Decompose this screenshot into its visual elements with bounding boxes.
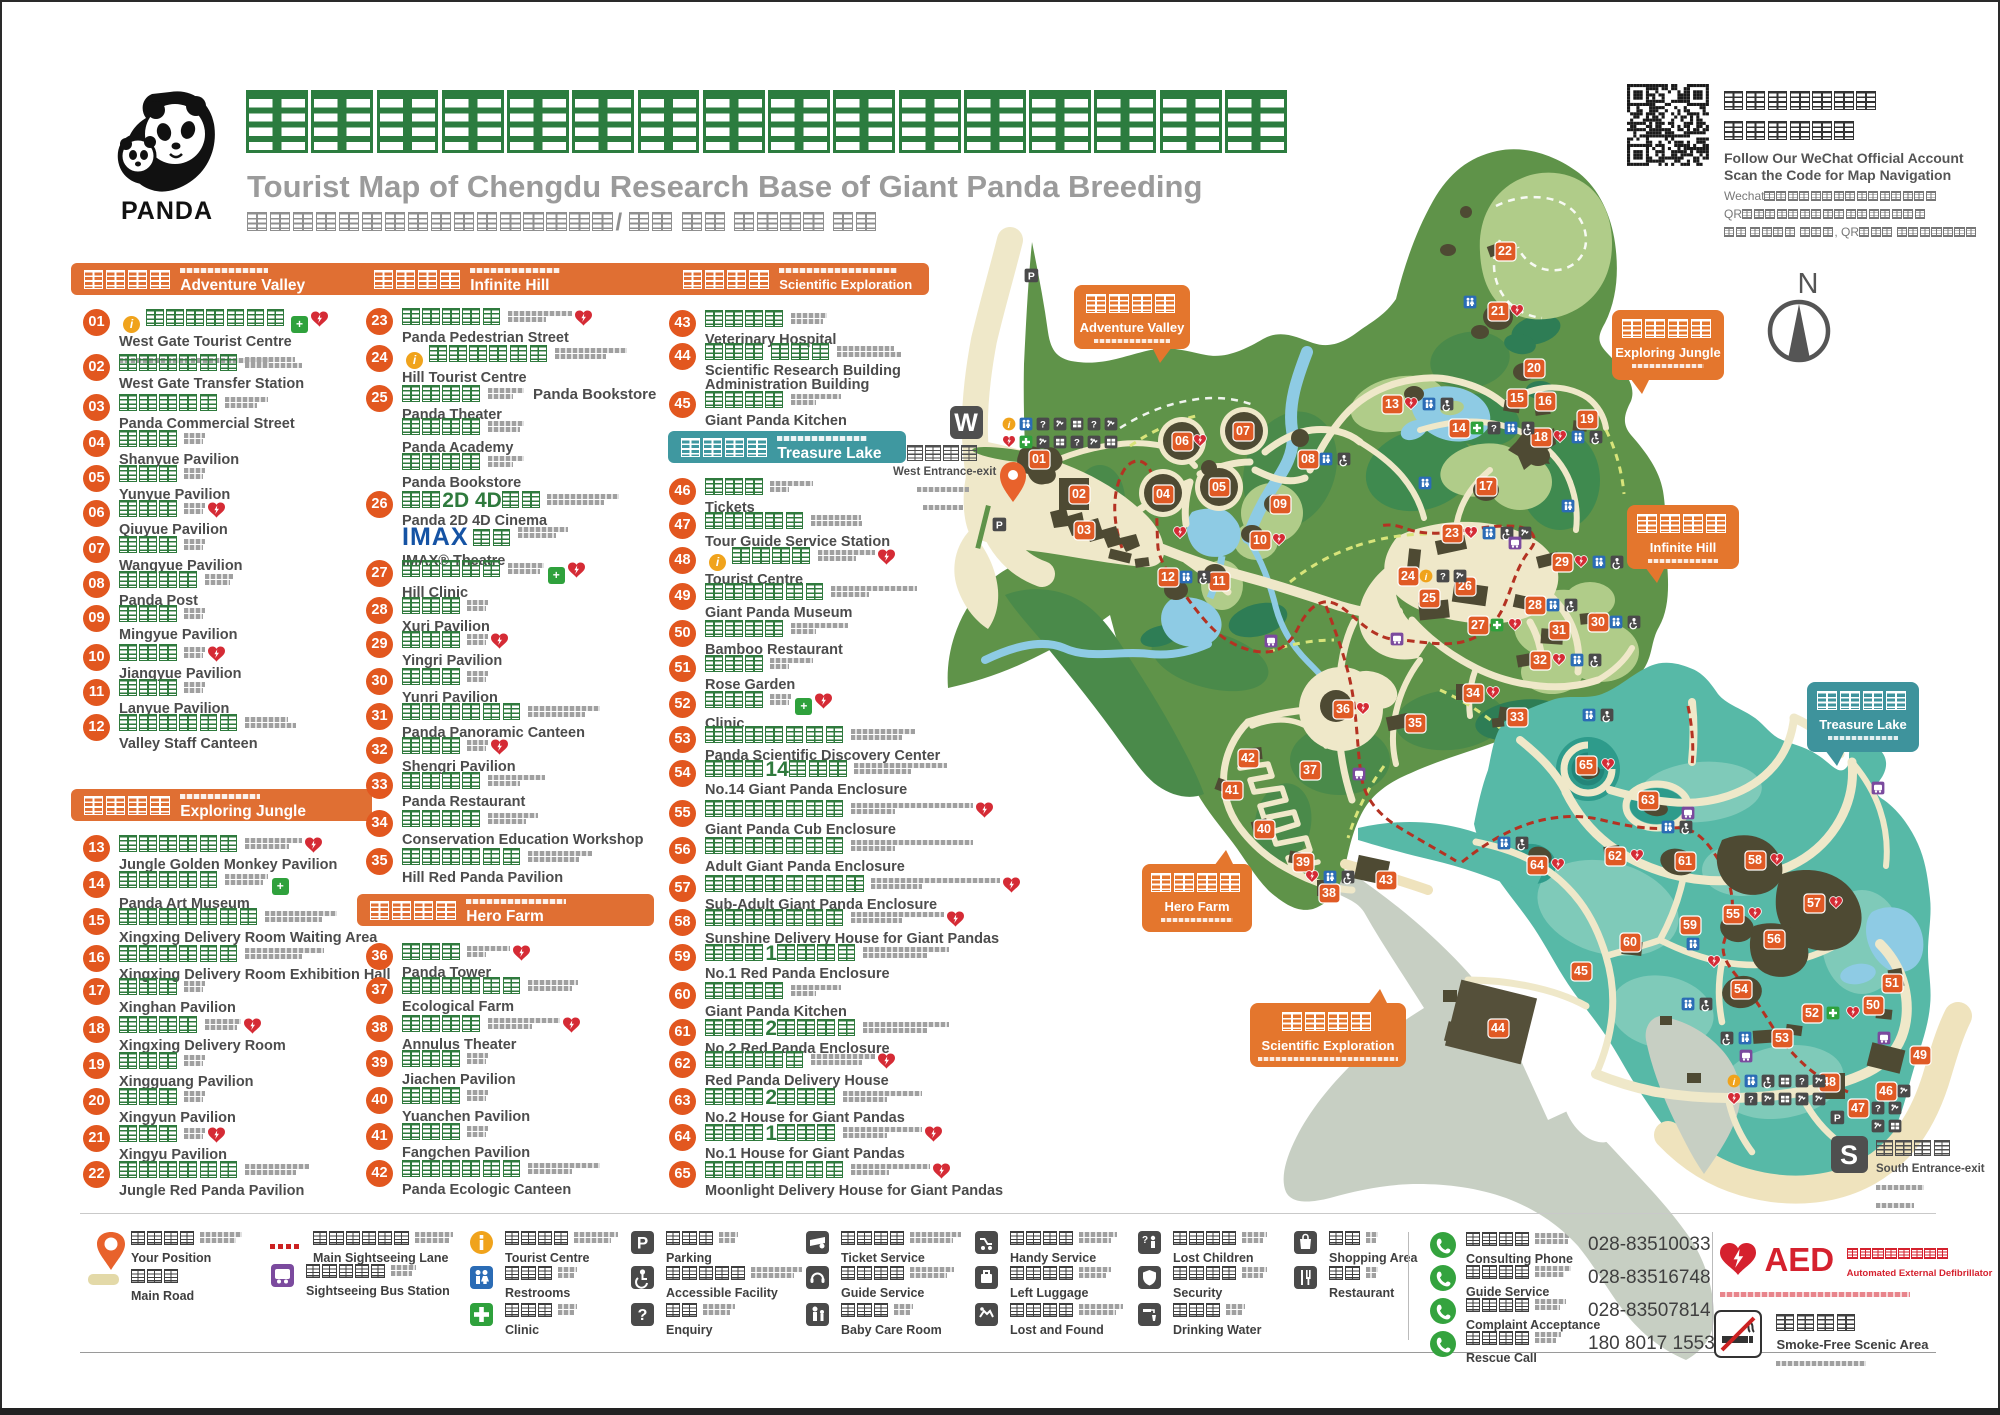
svg-text:25: 25 bbox=[1422, 591, 1436, 605]
svg-text:63: 63 bbox=[1641, 793, 1655, 807]
svg-text:43: 43 bbox=[1379, 873, 1393, 887]
svg-text:09: 09 bbox=[1273, 497, 1287, 511]
svg-text:64: 64 bbox=[1530, 858, 1544, 872]
svg-text:37: 37 bbox=[1303, 763, 1317, 777]
svg-text:29: 29 bbox=[1555, 555, 1569, 569]
svg-text:36: 36 bbox=[1336, 702, 1350, 716]
svg-text:57: 57 bbox=[1807, 896, 1821, 910]
svg-text:47: 47 bbox=[1851, 1101, 1865, 1115]
svg-text:P: P bbox=[637, 1234, 648, 1253]
svg-text:10: 10 bbox=[1253, 533, 1267, 547]
svg-text:03: 03 bbox=[1077, 523, 1091, 537]
svg-text:?: ? bbox=[638, 1307, 648, 1324]
svg-text:S: S bbox=[1840, 1140, 1858, 1170]
svg-text:28: 28 bbox=[1528, 598, 1542, 612]
svg-text:54: 54 bbox=[1734, 982, 1748, 996]
svg-text:04: 04 bbox=[1156, 487, 1170, 501]
svg-text:56: 56 bbox=[1767, 932, 1781, 946]
svg-text:19: 19 bbox=[1580, 412, 1594, 426]
svg-text:31: 31 bbox=[1552, 623, 1566, 637]
svg-text:14: 14 bbox=[1452, 421, 1466, 435]
svg-text:22: 22 bbox=[1498, 244, 1512, 258]
svg-text:49: 49 bbox=[1913, 1048, 1927, 1062]
svg-text:39: 39 bbox=[1296, 855, 1310, 869]
svg-text:60: 60 bbox=[1623, 935, 1637, 949]
svg-text:11: 11 bbox=[1212, 574, 1225, 588]
svg-text:35: 35 bbox=[1408, 716, 1422, 730]
svg-text:42: 42 bbox=[1241, 751, 1255, 765]
svg-text:41: 41 bbox=[1225, 783, 1239, 797]
svg-text:07: 07 bbox=[1236, 424, 1250, 438]
svg-text:21: 21 bbox=[1491, 304, 1505, 318]
svg-text:50: 50 bbox=[1866, 998, 1880, 1012]
svg-text:55: 55 bbox=[1726, 907, 1740, 921]
svg-text:W: W bbox=[954, 409, 978, 437]
svg-text:02: 02 bbox=[1072, 487, 1086, 501]
svg-text:33: 33 bbox=[1510, 710, 1524, 724]
svg-text:18: 18 bbox=[1534, 430, 1548, 444]
svg-text:52: 52 bbox=[1805, 1006, 1819, 1020]
svg-text:51: 51 bbox=[1885, 976, 1899, 990]
svg-text:20: 20 bbox=[1527, 361, 1541, 375]
svg-text:34: 34 bbox=[1466, 686, 1480, 700]
svg-text:15: 15 bbox=[1510, 391, 1524, 405]
svg-text:12: 12 bbox=[1161, 570, 1175, 584]
svg-text:58: 58 bbox=[1748, 853, 1762, 867]
svg-text:30: 30 bbox=[1591, 615, 1605, 629]
svg-text:62: 62 bbox=[1608, 849, 1622, 863]
svg-text:17: 17 bbox=[1479, 479, 1493, 493]
svg-text:23: 23 bbox=[1445, 526, 1459, 540]
svg-text:61: 61 bbox=[1678, 854, 1692, 868]
svg-text:01: 01 bbox=[1032, 452, 1046, 466]
svg-text:13: 13 bbox=[1385, 397, 1399, 411]
svg-text:32: 32 bbox=[1533, 653, 1547, 667]
svg-text:59: 59 bbox=[1683, 918, 1697, 932]
svg-text:45: 45 bbox=[1574, 964, 1588, 978]
svg-text:08: 08 bbox=[1301, 452, 1315, 466]
svg-text:38: 38 bbox=[1322, 886, 1336, 900]
svg-text:?: ? bbox=[1142, 1235, 1148, 1246]
svg-text:05: 05 bbox=[1212, 480, 1226, 494]
svg-text:44: 44 bbox=[1491, 1021, 1505, 1035]
svg-text:40: 40 bbox=[1257, 822, 1271, 836]
svg-text:N: N bbox=[1798, 268, 1819, 300]
svg-text:16: 16 bbox=[1538, 394, 1552, 408]
svg-text:53: 53 bbox=[1775, 1031, 1789, 1045]
svg-text:24: 24 bbox=[1401, 569, 1415, 583]
svg-text:46: 46 bbox=[1879, 1084, 1893, 1098]
svg-text:27: 27 bbox=[1471, 618, 1485, 632]
svg-text:06: 06 bbox=[1175, 434, 1189, 448]
svg-text:65: 65 bbox=[1579, 758, 1593, 772]
